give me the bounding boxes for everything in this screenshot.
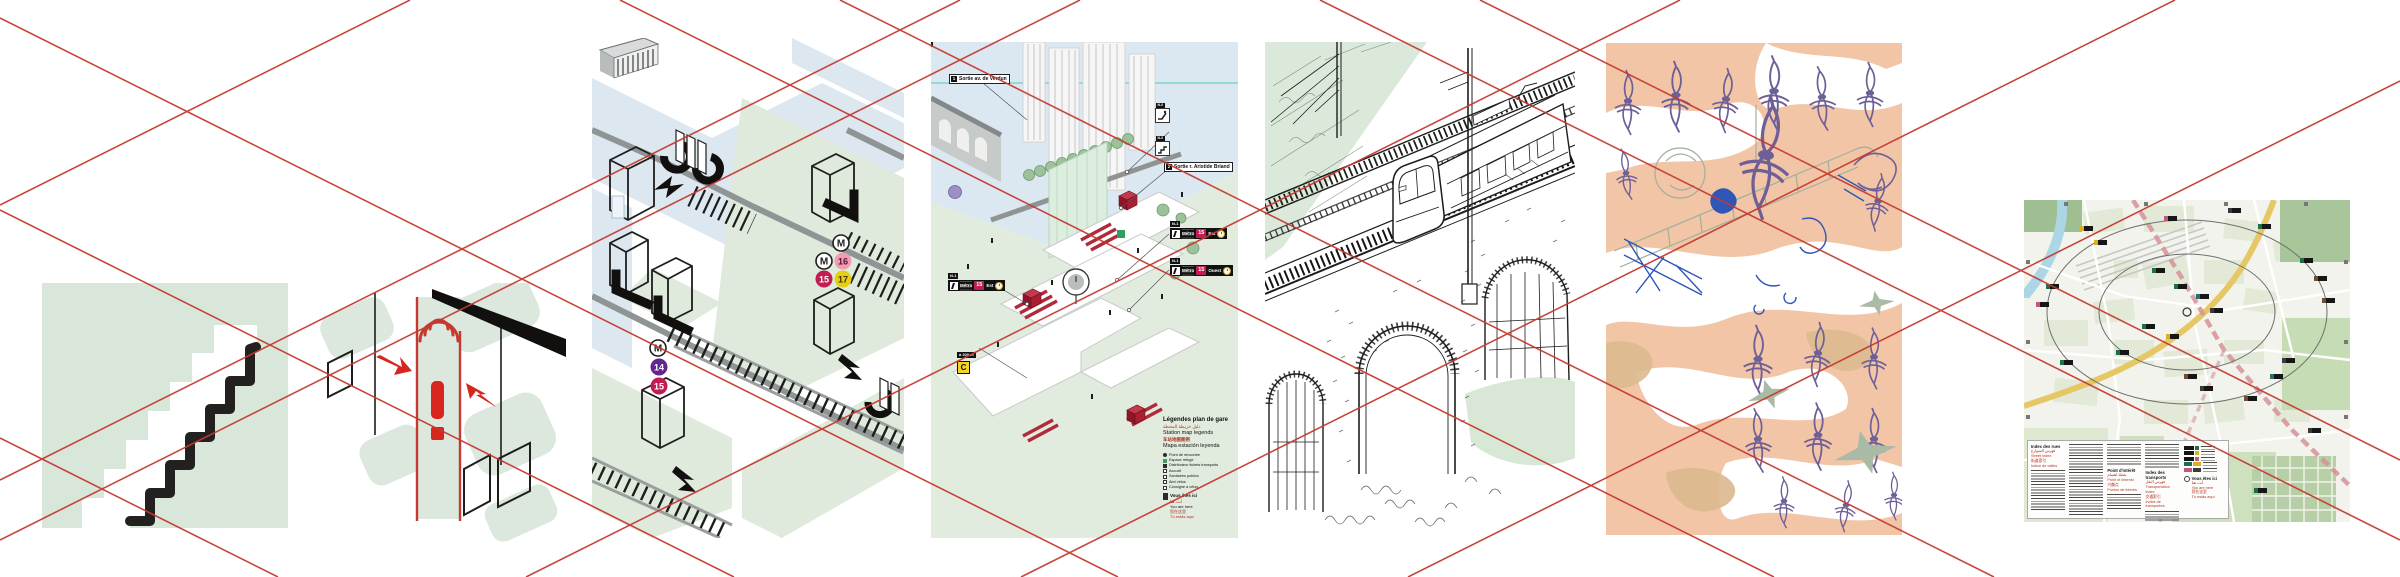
exit-chip (1117, 230, 1125, 238)
you-are-here-icon (1163, 493, 1168, 500)
map-label (2094, 240, 2107, 245)
map-label (2036, 302, 2049, 307)
map-label (2080, 226, 2093, 231)
panel-station-map[interactable]: 1 Sortie av. de Verdun 2 Sortie r. Arist… (931, 42, 1238, 538)
street-list-placeholder (2069, 444, 2103, 516)
poi-list-placeholder (2145, 444, 2179, 468)
walker-icon (950, 282, 958, 290)
map-label (2210, 308, 2223, 313)
svg-text:17: 17 (838, 275, 848, 285)
you-are-here: Vous êtes ici أنت هنا You are here 您在这里 … (2184, 476, 2225, 500)
map-label (2060, 360, 2073, 365)
panel-propeller-sketch[interactable] (1606, 43, 1902, 535)
panel-stairs-pictogram[interactable] (42, 283, 288, 528)
map-label (2258, 224, 2271, 229)
legend-item: Consigne à vélos (1163, 485, 1237, 490)
exit-number: 2 (1166, 164, 1172, 170)
moodboard-canvas: M 14 15 M M 16 15 17 (0, 0, 2400, 577)
map-label (2174, 284, 2187, 289)
map-label (2322, 298, 2335, 303)
map-label (2244, 396, 2257, 401)
exit-callout-2: 2 Sortie r. Aristide Briand (1164, 162, 1233, 172)
clock-icon (995, 282, 1003, 290)
street-list-placeholder (2107, 444, 2141, 466)
map-label (2152, 268, 2165, 273)
panel-city-map[interactable]: Index des rues فهرس الشوارع Street index… (2024, 200, 2350, 522)
map-label (2314, 276, 2327, 281)
escalator-plate: N-0 (1155, 108, 1170, 123)
map-label (2184, 374, 2197, 379)
metro-15-est-badge: N-1 Métro15Est (1170, 228, 1227, 239)
map-label (2166, 334, 2179, 339)
svg-text:M: M (820, 257, 828, 268)
map-label (2196, 294, 2209, 299)
svg-text:14: 14 (654, 363, 664, 373)
metro-15-ouest-badge: N-1 Métro15Ouest (1170, 265, 1233, 276)
map-label (2300, 258, 2313, 263)
you-are-here-icon (2184, 476, 2190, 482)
exit-label: Sortie av. de Verdun (959, 75, 1007, 83)
svg-text:M: M (654, 344, 662, 355)
exit-callout-1: 1 Sortie av. de Verdun (949, 74, 1010, 84)
map-label (2282, 358, 2295, 363)
svg-text:16: 16 (838, 257, 848, 267)
panel-metro-axonometric[interactable]: M 14 15 M M 16 15 17 (592, 38, 904, 538)
transport-list-placeholder (2145, 511, 2179, 521)
you-are-here: Vous êtes ici أنت هنا You are here 您在这里 … (1163, 493, 1237, 519)
walker-icon (1172, 230, 1180, 238)
exit-number: 1 (951, 76, 957, 82)
metro-axon-art: M 14 15 M M 16 15 17 (592, 38, 904, 538)
map-legend: Index des rues فهرس الشوارع Street index… (2027, 440, 2229, 519)
map-label (2200, 386, 2213, 391)
center-marker (2183, 308, 2191, 316)
clock-icon (1217, 230, 1225, 238)
svg-text:15: 15 (819, 275, 829, 285)
guide-line (0, 0, 410, 205)
map-label (2254, 488, 2267, 493)
map-label (2164, 216, 2177, 221)
map-label (2142, 324, 2155, 329)
metro-15-est-badge: N-1 Métro15Est (948, 280, 1005, 291)
map-label (2308, 428, 2321, 433)
purple-tree (949, 186, 962, 199)
map-label (2116, 350, 2129, 355)
svg-text:M: M (837, 239, 845, 250)
panel-corridor-alert-pictogram[interactable] (318, 283, 566, 543)
propeller-collage-art (1606, 43, 1902, 535)
map-label (2228, 208, 2241, 213)
stairs-pictogram-art (42, 283, 288, 528)
rer-c-badge: à 200 m C (957, 343, 976, 374)
map-label (2046, 284, 2059, 289)
poi-list-placeholder (2107, 494, 2141, 510)
metro-badges-left: M 14 15 (650, 340, 668, 395)
street-list-placeholder (2031, 470, 2065, 510)
wall-sign (612, 196, 624, 218)
panel-viaduct-train-drawing[interactable] (1265, 42, 1575, 540)
exit-label: Sortie r. Aristide Briand (1174, 163, 1230, 171)
map-label (2270, 374, 2283, 379)
exclamation-mark (431, 381, 444, 440)
clock-icon (1223, 267, 1231, 275)
station-map-legend: Légendes plan de gare دليل خريطة المحطة … (1163, 417, 1237, 519)
svg-text:15: 15 (654, 382, 664, 392)
stairs-plate: N-0 (1155, 141, 1170, 156)
corridor-pictogram-art (318, 283, 566, 543)
viaduct-train-art (1265, 42, 1575, 540)
walker-icon (1172, 267, 1180, 275)
